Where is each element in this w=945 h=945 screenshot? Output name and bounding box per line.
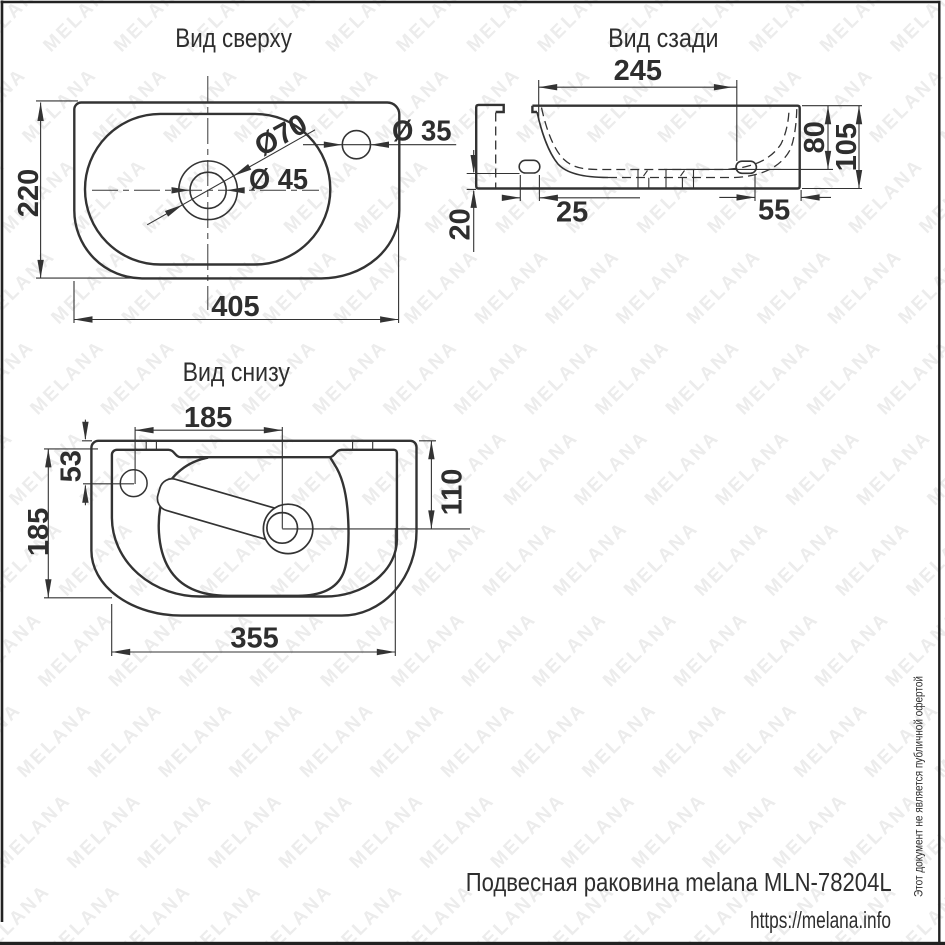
svg-text:MELANA: MELANA: [487, 790, 570, 873]
svg-text:MELANA: MELANA: [0, 790, 76, 873]
svg-text:80: 80: [799, 121, 831, 153]
svg-text:MELANA: MELANA: [387, 608, 470, 691]
svg-text:MELANA: MELANA: [134, 790, 217, 873]
svg-text:MELANA: MELANA: [204, 790, 287, 873]
svg-text:MELANA: MELANA: [105, 608, 188, 691]
svg-text:MELANA: MELANA: [790, 699, 873, 782]
svg-text:MELANA: MELANA: [13, 699, 96, 782]
svg-text:MELANA: MELANA: [816, 0, 899, 56]
svg-text:MELANA: MELANA: [437, 699, 520, 782]
svg-text:MELANA: MELANA: [769, 790, 852, 873]
svg-text:MELANA: MELANA: [753, 246, 836, 329]
svg-text:MELANA: MELANA: [183, 881, 266, 945]
svg-text:MELANA: MELANA: [26, 336, 109, 419]
svg-text:MELANA: MELANA: [508, 699, 591, 782]
svg-text:MELANA: MELANA: [832, 518, 915, 601]
svg-text:MELANA: MELANA: [113, 881, 196, 945]
svg-text:MELANA: MELANA: [139, 155, 222, 238]
svg-text:MELANA: MELANA: [874, 336, 945, 419]
svg-text:MELANA: MELANA: [732, 336, 815, 419]
svg-text:MELANA: MELANA: [887, 0, 945, 56]
svg-text:MELANA: MELANA: [557, 790, 640, 873]
svg-text:55: 55: [758, 195, 790, 227]
svg-text:MELANA: MELANA: [719, 699, 802, 782]
svg-text:Этот документ не является публ: Этот документ не является публичной офер…: [914, 676, 926, 897]
svg-text:MELANA: MELANA: [670, 608, 753, 691]
svg-text:25: 25: [556, 197, 588, 229]
svg-text:MELANA: MELANA: [691, 518, 774, 601]
svg-text:245: 245: [614, 55, 662, 87]
svg-text:MELANA: MELANA: [811, 608, 894, 691]
svg-text:MELANA: MELANA: [628, 790, 711, 873]
svg-text:MELANA: MELANA: [612, 246, 695, 329]
svg-text:MELANA: MELANA: [160, 64, 243, 147]
svg-text:Подвесная раковина melana MLN-: Подвесная раковина melana MLN-78204L: [466, 867, 892, 897]
svg-text:MELANA: MELANA: [578, 699, 661, 782]
svg-text:MELANA: MELANA: [346, 790, 429, 873]
svg-text:220: 220: [13, 169, 45, 217]
svg-text:MELANA: MELANA: [84, 699, 167, 782]
svg-text:MELANA: MELANA: [416, 790, 499, 873]
svg-text:Вид сверху: Вид сверху: [175, 23, 292, 53]
svg-text:MELANA: MELANA: [296, 699, 379, 782]
svg-text:MELANA: MELANA: [34, 608, 117, 691]
svg-text:MELANA: MELANA: [699, 790, 782, 873]
svg-text:185: 185: [184, 402, 232, 434]
svg-text:MELANA: MELANA: [740, 608, 823, 691]
svg-text:MELANA: MELANA: [549, 518, 632, 601]
svg-text:Вид снизу: Вид снизу: [183, 357, 291, 387]
svg-text:MELANA: MELANA: [542, 246, 625, 329]
svg-text:MELANA: MELANA: [400, 246, 483, 329]
svg-text:MELANA: MELANA: [0, 881, 55, 945]
svg-text:MELANA: MELANA: [225, 699, 308, 782]
svg-text:MELANA: MELANA: [534, 0, 617, 56]
svg-text:MELANA: MELANA: [259, 246, 342, 329]
svg-text:355: 355: [230, 623, 278, 655]
svg-text:MELANA: MELANA: [683, 246, 766, 329]
svg-text:MELANA: MELANA: [301, 64, 384, 147]
svg-text:MELANA: MELANA: [322, 0, 405, 56]
svg-text:MELANA: MELANA: [591, 336, 674, 419]
svg-text:MELANA: MELANA: [155, 699, 238, 782]
svg-text:MELANA: MELANA: [861, 699, 944, 782]
svg-text:MELANA: MELANA: [471, 246, 554, 329]
svg-text:Ø 35: Ø 35: [392, 116, 452, 148]
svg-text:MELANA: MELANA: [712, 427, 795, 510]
svg-text:MELANA: MELANA: [0, 0, 52, 56]
svg-text:MELANA: MELANA: [450, 336, 533, 419]
svg-text:MELANA: MELANA: [599, 608, 682, 691]
svg-text:MELANA: MELANA: [529, 608, 612, 691]
svg-text:105: 105: [831, 123, 863, 171]
svg-text:MELANA: MELANA: [47, 246, 130, 329]
svg-text:MELANA: MELANA: [500, 427, 583, 510]
svg-text:MELANA: MELANA: [63, 790, 146, 873]
svg-text:MELANA: MELANA: [392, 0, 475, 56]
svg-text:MELANA: MELANA: [521, 336, 604, 419]
svg-text:MELANA: MELANA: [275, 790, 358, 873]
svg-text:MELANA: MELANA: [649, 699, 732, 782]
svg-text:185: 185: [23, 508, 55, 556]
svg-text:53: 53: [56, 450, 88, 482]
svg-text:MELANA: MELANA: [866, 64, 945, 147]
svg-text:MELANA: MELANA: [458, 608, 541, 691]
svg-text:Ø 45: Ø 45: [249, 164, 308, 196]
svg-text:MELANA: MELANA: [853, 427, 936, 510]
svg-text:20: 20: [444, 208, 476, 240]
svg-text:MELANA: MELANA: [570, 427, 653, 510]
svg-text:MELANA: MELANA: [479, 518, 562, 601]
svg-text:MELANA: MELANA: [97, 336, 180, 419]
svg-text:MELANA: MELANA: [330, 246, 413, 329]
svg-text:MELANA: MELANA: [19, 64, 102, 147]
svg-text:MELANA: MELANA: [782, 427, 865, 510]
svg-text:MELANA: MELANA: [338, 518, 421, 601]
svg-text:MELANA: MELANA: [633, 155, 716, 238]
svg-text:405: 405: [211, 291, 259, 323]
svg-text:MELANA: MELANA: [254, 881, 337, 945]
svg-text:MELANA: MELANA: [317, 608, 400, 691]
svg-text:MELANA: MELANA: [408, 518, 491, 601]
svg-text:MELANA: MELANA: [351, 155, 434, 238]
svg-text:MELANA: MELANA: [68, 155, 151, 238]
svg-text:MELANA: MELANA: [89, 64, 172, 147]
svg-text:MELANA: MELANA: [824, 246, 907, 329]
svg-text:MELANA: MELANA: [840, 790, 923, 873]
svg-text:https://melana.info: https://melana.info: [750, 907, 891, 933]
svg-text:MELANA: MELANA: [745, 0, 828, 56]
svg-text:MELANA: MELANA: [76, 427, 159, 510]
svg-text:MELANA: MELANA: [463, 0, 546, 56]
svg-text:MELANA: MELANA: [42, 881, 125, 945]
svg-text:MELANA: MELANA: [359, 427, 442, 510]
svg-text:MELANA: MELANA: [39, 0, 122, 56]
svg-text:MELANA: MELANA: [288, 427, 371, 510]
svg-text:MELANA: MELANA: [126, 518, 209, 601]
svg-text:MELANA: MELANA: [662, 336, 745, 419]
svg-text:MELANA: MELANA: [761, 518, 844, 601]
svg-text:MELANA: MELANA: [366, 699, 449, 782]
svg-text:110: 110: [437, 469, 469, 516]
svg-text:MELANA: MELANA: [803, 336, 886, 419]
svg-text:MELANA: MELANA: [641, 427, 724, 510]
svg-text:Вид сзади: Вид сзади: [608, 23, 718, 53]
svg-text:MELANA: MELANA: [379, 336, 462, 419]
svg-text:MELANA: MELANA: [325, 881, 408, 945]
svg-text:MELANA: MELANA: [620, 518, 703, 601]
svg-text:MELANA: MELANA: [309, 336, 392, 419]
